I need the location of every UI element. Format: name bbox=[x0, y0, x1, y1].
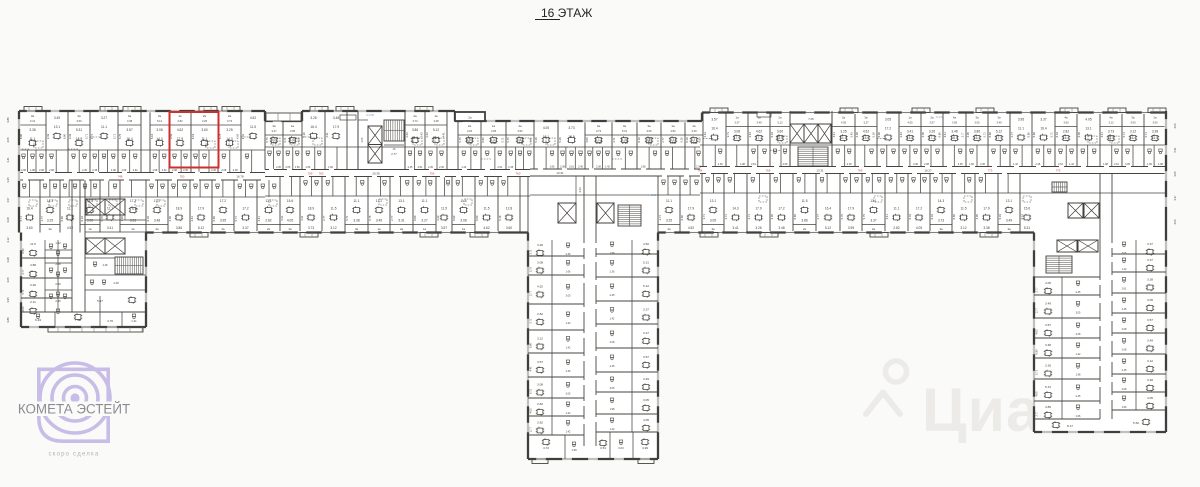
svg-text:5.71: 5.71 bbox=[345, 215, 349, 221]
svg-text:1.42: 1.42 bbox=[566, 347, 571, 350]
svg-text:3.86: 3.86 bbox=[801, 219, 807, 223]
svg-text:4a: 4a bbox=[178, 114, 182, 118]
svg-text:3.71: 3.71 bbox=[1049, 132, 1053, 138]
svg-text:3.12: 3.12 bbox=[1130, 130, 1136, 134]
svg-text:4.05: 4.05 bbox=[168, 216, 172, 222]
svg-text:1.42: 1.42 bbox=[1122, 268, 1127, 271]
svg-text:3.49: 3.49 bbox=[1147, 339, 1153, 343]
svg-text:11.5: 11.5 bbox=[802, 199, 808, 203]
svg-text:4.05: 4.05 bbox=[1147, 396, 1153, 400]
svg-text:3.05: 3.05 bbox=[1147, 298, 1153, 302]
svg-text:2.45: 2.45 bbox=[1122, 369, 1127, 372]
svg-text:2.77: 2.77 bbox=[528, 290, 532, 296]
svg-text:14.3: 14.3 bbox=[47, 199, 53, 203]
svg-text:3a: 3a bbox=[939, 227, 943, 231]
svg-text:1.66: 1.66 bbox=[1076, 415, 1081, 418]
svg-text:3.49: 3.49 bbox=[376, 219, 382, 223]
svg-text:4a: 4a bbox=[1109, 116, 1113, 120]
svg-text:17.2: 17.2 bbox=[756, 136, 762, 140]
svg-text:5.31: 5.31 bbox=[622, 129, 628, 133]
svg-text:16.4: 16.4 bbox=[1063, 136, 1069, 140]
svg-text:4a: 4a bbox=[597, 124, 601, 128]
svg-text:3.05: 3.05 bbox=[1152, 121, 1158, 125]
svg-text:7.03: 7.03 bbox=[75, 318, 81, 322]
svg-text:748: 748 bbox=[118, 175, 123, 179]
svg-text:2.08: 2.08 bbox=[1076, 333, 1081, 336]
svg-text:1.98: 1.98 bbox=[641, 166, 646, 169]
svg-text:3.26: 3.26 bbox=[467, 129, 473, 133]
svg-text:13.31: 13.31 bbox=[816, 169, 824, 173]
svg-text:3.25: 3.25 bbox=[666, 219, 672, 223]
svg-text:3.37: 3.37 bbox=[870, 219, 876, 223]
svg-text:1.42: 1.42 bbox=[605, 166, 610, 169]
svg-text:3a: 3a bbox=[1007, 227, 1011, 231]
svg-text:5.71: 5.71 bbox=[21, 289, 25, 295]
svg-text:17.2: 17.2 bbox=[242, 207, 248, 211]
svg-text:14.3: 14.3 bbox=[732, 207, 738, 211]
svg-text:5.52: 5.52 bbox=[1133, 421, 1139, 425]
svg-text:766: 766 bbox=[766, 169, 771, 173]
svg-text:3.38: 3.38 bbox=[353, 219, 359, 223]
svg-text:3.57: 3.57 bbox=[1147, 318, 1153, 322]
svg-text:4.05: 4.05 bbox=[6, 137, 10, 143]
svg-text:6.80: 6.80 bbox=[988, 132, 992, 138]
svg-text:3.71: 3.71 bbox=[528, 249, 532, 255]
svg-text:3.71: 3.71 bbox=[658, 215, 662, 221]
svg-text:5.75: 5.75 bbox=[506, 137, 510, 143]
svg-text:3.73: 3.73 bbox=[568, 126, 574, 130]
svg-text:3.60: 3.60 bbox=[26, 226, 32, 230]
svg-text:3.08: 3.08 bbox=[460, 219, 466, 223]
svg-text:3.12: 3.12 bbox=[1108, 121, 1114, 125]
svg-text:2.08: 2.08 bbox=[924, 163, 929, 166]
svg-text:6.19: 6.19 bbox=[685, 137, 689, 143]
svg-text:0.03: 0.03 bbox=[618, 446, 624, 450]
svg-text:2.08: 2.08 bbox=[783, 163, 788, 166]
svg-text:20.39: 20.39 bbox=[372, 172, 380, 176]
svg-text:3.38: 3.38 bbox=[29, 128, 35, 132]
svg-text:4a: 4a bbox=[413, 114, 417, 118]
svg-text:2.08: 2.08 bbox=[233, 169, 238, 172]
svg-text:1.42: 1.42 bbox=[461, 166, 466, 169]
svg-text:2.11: 2.11 bbox=[30, 300, 36, 304]
svg-text:1.66: 1.66 bbox=[305, 166, 310, 169]
svg-text:3.05: 3.05 bbox=[958, 163, 963, 166]
svg-text:3.05: 3.05 bbox=[566, 295, 571, 298]
svg-text:17.2: 17.2 bbox=[916, 207, 922, 211]
svg-text:6.16: 6.16 bbox=[132, 207, 138, 211]
svg-text:5.71: 5.71 bbox=[1144, 132, 1148, 138]
svg-text:2.45: 2.45 bbox=[276, 166, 281, 169]
svg-text:2.77: 2.77 bbox=[1034, 287, 1038, 293]
svg-text:2.36: 2.36 bbox=[718, 163, 723, 166]
svg-text:4a: 4a bbox=[692, 124, 696, 128]
svg-text:16.78: 16.78 bbox=[236, 175, 244, 179]
svg-text:1.98: 1.98 bbox=[30, 169, 35, 172]
svg-text:6.80: 6.80 bbox=[697, 137, 701, 143]
svg-text:2.36: 2.36 bbox=[183, 169, 188, 172]
svg-text:6.80: 6.80 bbox=[481, 137, 485, 143]
svg-text:5.31: 5.31 bbox=[643, 261, 649, 265]
svg-text:3.05: 3.05 bbox=[643, 398, 649, 402]
svg-text:2.61: 2.61 bbox=[1058, 163, 1063, 166]
svg-text:3.48: 3.48 bbox=[1147, 378, 1153, 382]
svg-text:4.05: 4.05 bbox=[841, 121, 847, 125]
svg-text:3.26: 3.26 bbox=[1045, 364, 1051, 368]
svg-text:4.05: 4.05 bbox=[543, 126, 549, 130]
svg-text:3.95: 3.95 bbox=[290, 129, 296, 133]
svg-text:3.73: 3.73 bbox=[227, 119, 233, 123]
svg-text:3.43: 3.43 bbox=[849, 132, 853, 138]
svg-text:3.37: 3.37 bbox=[1040, 118, 1046, 122]
svg-text:5.75: 5.75 bbox=[528, 266, 532, 272]
svg-text:3.60: 3.60 bbox=[777, 130, 783, 134]
svg-text:1.98: 1.98 bbox=[610, 252, 615, 255]
svg-text:17.9: 17.9 bbox=[621, 141, 627, 145]
svg-text:3.73: 3.73 bbox=[308, 226, 314, 230]
svg-text:2.61: 2.61 bbox=[497, 166, 502, 169]
svg-text:3.05: 3.05 bbox=[87, 219, 93, 223]
svg-text:3a: 3a bbox=[975, 116, 979, 120]
svg-text:13.1: 13.1 bbox=[490, 141, 496, 145]
svg-text:1a: 1a bbox=[462, 227, 466, 231]
svg-text:2.77: 2.77 bbox=[661, 137, 665, 143]
svg-text:4.52: 4.52 bbox=[643, 242, 649, 246]
svg-text:3.43: 3.43 bbox=[46, 133, 50, 139]
svg-text:3.27: 3.27 bbox=[101, 116, 107, 120]
svg-text:2a: 2a bbox=[1153, 116, 1157, 120]
svg-text:3.41: 3.41 bbox=[30, 119, 36, 123]
svg-text:2.45: 2.45 bbox=[1035, 163, 1040, 166]
svg-text:3.05: 3.05 bbox=[974, 121, 980, 125]
svg-text:2a: 2a bbox=[803, 227, 807, 231]
svg-text:2.82: 2.82 bbox=[177, 119, 183, 123]
svg-text:1a: 1a bbox=[291, 124, 295, 128]
svg-text:16.27: 16.27 bbox=[924, 169, 932, 173]
svg-text:4.41: 4.41 bbox=[885, 214, 889, 220]
svg-text:4.05: 4.05 bbox=[643, 418, 649, 422]
svg-text:2a: 2a bbox=[842, 116, 846, 120]
svg-text:6.80: 6.80 bbox=[1034, 349, 1038, 355]
svg-text:2.82: 2.82 bbox=[537, 421, 543, 425]
svg-text:3.86: 3.86 bbox=[1045, 405, 1051, 409]
svg-text:3.49: 3.49 bbox=[1045, 302, 1051, 306]
svg-text:15.6: 15.6 bbox=[863, 136, 869, 140]
svg-text:4.52: 4.52 bbox=[517, 129, 523, 133]
svg-text:8.17: 8.17 bbox=[1067, 424, 1073, 428]
svg-text:3.48: 3.48 bbox=[433, 119, 439, 123]
svg-text:2.77: 2.77 bbox=[1034, 307, 1038, 313]
svg-text:4.05: 4.05 bbox=[966, 132, 970, 138]
svg-text:11.1: 11.1 bbox=[354, 199, 360, 203]
svg-text:4.76: 4.76 bbox=[107, 319, 113, 323]
svg-text:775: 775 bbox=[1056, 169, 1061, 173]
svg-text:5.12: 5.12 bbox=[433, 128, 439, 132]
svg-text:11.1: 11.1 bbox=[1018, 127, 1024, 131]
svg-text:6.80: 6.80 bbox=[452, 215, 456, 221]
svg-text:760: 760 bbox=[319, 172, 324, 176]
svg-text:2.45: 2.45 bbox=[610, 294, 615, 297]
svg-text:3.05: 3.05 bbox=[285, 166, 290, 169]
svg-text:1.66: 1.66 bbox=[566, 271, 571, 274]
svg-text:2a: 2a bbox=[468, 116, 472, 120]
svg-text:5.16: 5.16 bbox=[558, 137, 562, 143]
svg-text:5.97: 5.97 bbox=[97, 299, 103, 303]
svg-text:3.48: 3.48 bbox=[1045, 343, 1051, 347]
svg-text:2.82: 2.82 bbox=[537, 312, 543, 316]
svg-text:3.43: 3.43 bbox=[190, 216, 194, 222]
svg-text:11.5: 11.5 bbox=[596, 141, 602, 145]
svg-text:3.73: 3.73 bbox=[938, 219, 944, 223]
svg-text:3a: 3a bbox=[31, 114, 35, 118]
svg-text:5.71: 5.71 bbox=[90, 133, 94, 139]
svg-text:14.3: 14.3 bbox=[289, 141, 295, 145]
svg-text:3.37: 3.37 bbox=[242, 226, 248, 230]
svg-text:3.12: 3.12 bbox=[330, 226, 336, 230]
svg-text:11.5: 11.5 bbox=[1152, 136, 1158, 140]
svg-text:5.71: 5.71 bbox=[1122, 132, 1126, 138]
svg-text:4.41: 4.41 bbox=[300, 215, 304, 221]
svg-text:3.49: 3.49 bbox=[54, 116, 60, 120]
svg-text:3.05: 3.05 bbox=[1125, 163, 1130, 166]
svg-text:3.37: 3.37 bbox=[1147, 258, 1153, 262]
svg-text:3.57: 3.57 bbox=[537, 360, 543, 364]
svg-text:6.19: 6.19 bbox=[637, 137, 641, 143]
svg-text:6.19: 6.19 bbox=[146, 216, 150, 222]
svg-text:2.82: 2.82 bbox=[1063, 130, 1069, 134]
svg-text:5.16: 5.16 bbox=[498, 215, 502, 221]
svg-text:3.26: 3.26 bbox=[130, 219, 136, 223]
svg-text:3.95: 3.95 bbox=[848, 226, 854, 230]
svg-text:5.71: 5.71 bbox=[1034, 369, 1038, 375]
svg-text:4.99: 4.99 bbox=[642, 446, 648, 450]
svg-text:6.80: 6.80 bbox=[952, 214, 956, 220]
svg-text:2a: 2a bbox=[155, 227, 159, 231]
svg-text:5.16: 5.16 bbox=[534, 137, 538, 143]
svg-text:1.05: 1.05 bbox=[361, 137, 364, 142]
svg-text:17.9: 17.9 bbox=[333, 125, 339, 129]
svg-text:3.86: 3.86 bbox=[974, 130, 980, 134]
svg-text:3.95: 3.95 bbox=[1018, 118, 1024, 122]
svg-text:2.61: 2.61 bbox=[162, 169, 167, 172]
svg-text:4a: 4a bbox=[128, 114, 132, 118]
svg-text:6.80: 6.80 bbox=[1026, 132, 1030, 138]
svg-text:11.5: 11.5 bbox=[441, 207, 447, 211]
svg-text:3.41: 3.41 bbox=[6, 157, 10, 163]
svg-text:17.9: 17.9 bbox=[734, 136, 740, 140]
svg-text:17.2: 17.2 bbox=[778, 207, 784, 211]
svg-text:1.98: 1.98 bbox=[610, 408, 615, 411]
svg-text:11.1: 11.1 bbox=[666, 199, 672, 203]
svg-text:3.25: 3.25 bbox=[202, 119, 208, 123]
svg-text:3.48: 3.48 bbox=[333, 116, 339, 120]
svg-text:3.26: 3.26 bbox=[537, 243, 543, 247]
svg-text:11.5: 11.5 bbox=[331, 207, 337, 211]
svg-text:17.9: 17.9 bbox=[688, 207, 694, 211]
svg-text:1a: 1a bbox=[671, 124, 675, 128]
svg-text:2.77: 2.77 bbox=[322, 215, 326, 221]
svg-text:3.57: 3.57 bbox=[1045, 323, 1051, 327]
svg-text:3a: 3a bbox=[864, 116, 868, 120]
svg-text:3a: 3a bbox=[711, 227, 715, 231]
svg-text:13.1: 13.1 bbox=[710, 199, 716, 203]
svg-text:5.16: 5.16 bbox=[150, 133, 154, 139]
svg-text:3.25: 3.25 bbox=[6, 177, 10, 183]
svg-text:15.6: 15.6 bbox=[287, 199, 293, 203]
svg-text:16.4: 16.4 bbox=[26, 207, 32, 211]
svg-text:3.73: 3.73 bbox=[412, 119, 418, 123]
svg-text:5.12: 5.12 bbox=[643, 284, 649, 288]
svg-text:3.38: 3.38 bbox=[1147, 278, 1153, 282]
svg-text:11.5: 11.5 bbox=[250, 125, 256, 129]
svg-text:3.38: 3.38 bbox=[983, 226, 989, 230]
svg-text:14.3: 14.3 bbox=[938, 199, 944, 203]
svg-text:11.1: 11.1 bbox=[107, 207, 113, 211]
svg-text:4.88: 4.88 bbox=[30, 263, 36, 267]
svg-text:17.2: 17.2 bbox=[220, 199, 226, 203]
svg-text:2.08: 2.08 bbox=[1122, 349, 1127, 352]
svg-text:1.98: 1.98 bbox=[1103, 163, 1108, 166]
svg-text:3a: 3a bbox=[355, 227, 359, 231]
svg-text:2.36: 2.36 bbox=[596, 166, 601, 169]
svg-text:6.19: 6.19 bbox=[908, 214, 912, 220]
svg-text:2.36: 2.36 bbox=[566, 253, 571, 256]
svg-text:3.57: 3.57 bbox=[929, 121, 935, 125]
svg-text:3.41: 3.41 bbox=[907, 130, 913, 134]
svg-text:1.66: 1.66 bbox=[550, 166, 555, 169]
svg-text:18.9: 18.9 bbox=[176, 207, 182, 211]
svg-text:2a: 2a bbox=[872, 227, 876, 231]
svg-text:2.45: 2.45 bbox=[92, 169, 97, 172]
svg-text:2.45: 2.45 bbox=[1076, 395, 1081, 398]
svg-text:5.71: 5.71 bbox=[84, 133, 88, 139]
svg-text:3.48: 3.48 bbox=[127, 119, 133, 123]
svg-text:11.1: 11.1 bbox=[101, 125, 107, 129]
svg-text:1.66: 1.66 bbox=[1122, 406, 1127, 409]
svg-text:2.45: 2.45 bbox=[508, 166, 513, 169]
svg-text:3.43: 3.43 bbox=[405, 132, 409, 138]
svg-text:17.9: 17.9 bbox=[996, 136, 1002, 140]
svg-text:3.27: 3.27 bbox=[863, 121, 869, 125]
svg-text:3.05: 3.05 bbox=[710, 219, 716, 223]
svg-text:5.71: 5.71 bbox=[283, 137, 287, 143]
svg-text:3.05: 3.05 bbox=[885, 118, 891, 122]
svg-text:4.62: 4.62 bbox=[756, 130, 762, 134]
svg-text:2.45: 2.45 bbox=[1076, 291, 1081, 294]
svg-text:3a: 3a bbox=[48, 227, 52, 231]
svg-text:4.62: 4.62 bbox=[483, 226, 489, 230]
svg-text:3.60: 3.60 bbox=[1063, 121, 1069, 125]
svg-text:13.1: 13.1 bbox=[398, 199, 404, 203]
svg-text:2.36: 2.36 bbox=[211, 169, 216, 172]
svg-text:6.80: 6.80 bbox=[21, 248, 25, 254]
svg-text:18.9: 18.9 bbox=[308, 207, 314, 211]
svg-text:3.08: 3.08 bbox=[537, 261, 543, 265]
svg-text:4.05: 4.05 bbox=[491, 129, 497, 133]
svg-text:3.73: 3.73 bbox=[596, 129, 602, 133]
svg-text:4.41: 4.41 bbox=[325, 132, 329, 138]
svg-text:11.1: 11.1 bbox=[422, 199, 428, 203]
svg-text:2.45: 2.45 bbox=[428, 166, 433, 169]
svg-text:16.4: 16.4 bbox=[1130, 136, 1136, 140]
svg-text:5.12: 5.12 bbox=[157, 119, 163, 123]
svg-text:3.08: 3.08 bbox=[734, 130, 740, 134]
svg-text:2.61: 2.61 bbox=[1114, 163, 1119, 166]
svg-text:6.80: 6.80 bbox=[475, 215, 479, 221]
svg-text:4.05: 4.05 bbox=[907, 121, 913, 125]
svg-text:5.75: 5.75 bbox=[368, 215, 372, 221]
svg-text:13.1: 13.1 bbox=[1006, 199, 1012, 203]
svg-text:17.9: 17.9 bbox=[198, 207, 204, 211]
svg-text:5.31: 5.31 bbox=[398, 219, 404, 223]
svg-text:1.98: 1.98 bbox=[740, 163, 745, 166]
svg-text:4.41: 4.41 bbox=[257, 216, 261, 222]
svg-text:16.4: 16.4 bbox=[310, 125, 316, 129]
svg-text:1.99: 1.99 bbox=[571, 448, 577, 452]
svg-text:3.26: 3.26 bbox=[755, 226, 761, 230]
svg-text:2a: 2a bbox=[930, 116, 934, 120]
svg-text:3a: 3a bbox=[77, 114, 81, 118]
svg-text:5.71: 5.71 bbox=[112, 133, 116, 139]
svg-text:h=2.85: h=2.85 bbox=[366, 113, 375, 117]
svg-text:16.4: 16.4 bbox=[825, 207, 831, 211]
svg-text:2.45: 2.45 bbox=[1122, 308, 1127, 311]
svg-text:16.4: 16.4 bbox=[711, 127, 717, 131]
svg-text:2.08: 2.08 bbox=[172, 169, 177, 172]
svg-text:17.9: 17.9 bbox=[848, 207, 854, 211]
svg-text:1.42: 1.42 bbox=[566, 431, 571, 434]
svg-text:2.45: 2.45 bbox=[566, 370, 571, 373]
svg-text:3.71: 3.71 bbox=[528, 318, 532, 324]
svg-text:5.75: 5.75 bbox=[862, 214, 866, 220]
svg-text:2.48: 2.48 bbox=[103, 264, 108, 267]
svg-text:2a: 2a bbox=[221, 227, 225, 231]
svg-text:4a: 4a bbox=[953, 116, 957, 120]
svg-text:16 ЭТАЖ: 16 ЭТАЖ bbox=[541, 6, 592, 20]
svg-text:2.82: 2.82 bbox=[537, 402, 543, 406]
svg-text:4.52: 4.52 bbox=[250, 116, 256, 120]
svg-text:3.41: 3.41 bbox=[107, 226, 113, 230]
svg-text:КОМЕТА ЭСТЕЙТ: КОМЕТА ЭСТЕЙТ bbox=[18, 402, 130, 417]
svg-text:5.16: 5.16 bbox=[871, 132, 875, 138]
svg-text:4.41: 4.41 bbox=[832, 132, 836, 138]
svg-text:3.71: 3.71 bbox=[702, 214, 706, 220]
svg-text:764: 764 bbox=[698, 169, 703, 173]
svg-text:3.95: 3.95 bbox=[220, 219, 226, 223]
svg-text:1.42: 1.42 bbox=[566, 322, 571, 325]
svg-text:6.80: 6.80 bbox=[680, 215, 684, 221]
svg-text:3.49: 3.49 bbox=[691, 129, 697, 133]
svg-text:1.98: 1.98 bbox=[1076, 374, 1081, 377]
svg-text:3.60: 3.60 bbox=[76, 119, 82, 123]
svg-text:3.05: 3.05 bbox=[646, 129, 652, 133]
svg-text:1.42: 1.42 bbox=[610, 318, 615, 321]
svg-text:4a: 4a bbox=[518, 124, 522, 128]
svg-text:2.08: 2.08 bbox=[39, 169, 44, 172]
svg-text:7.05: 7.05 bbox=[808, 117, 814, 121]
svg-text:11.5: 11.5 bbox=[961, 207, 967, 211]
svg-text:15.6: 15.6 bbox=[907, 136, 913, 140]
svg-text:3.05: 3.05 bbox=[1122, 252, 1127, 255]
svg-text:4.05: 4.05 bbox=[1085, 118, 1091, 122]
svg-text:2.08: 2.08 bbox=[21, 169, 26, 172]
svg-text:скоро сделка: скоро сделка bbox=[48, 452, 99, 458]
svg-text:5.16: 5.16 bbox=[679, 137, 683, 143]
svg-text:3a: 3a bbox=[997, 116, 1001, 120]
svg-text:4.05: 4.05 bbox=[921, 132, 925, 138]
svg-text:4.05: 4.05 bbox=[585, 137, 589, 143]
svg-text:2a: 2a bbox=[131, 227, 135, 231]
